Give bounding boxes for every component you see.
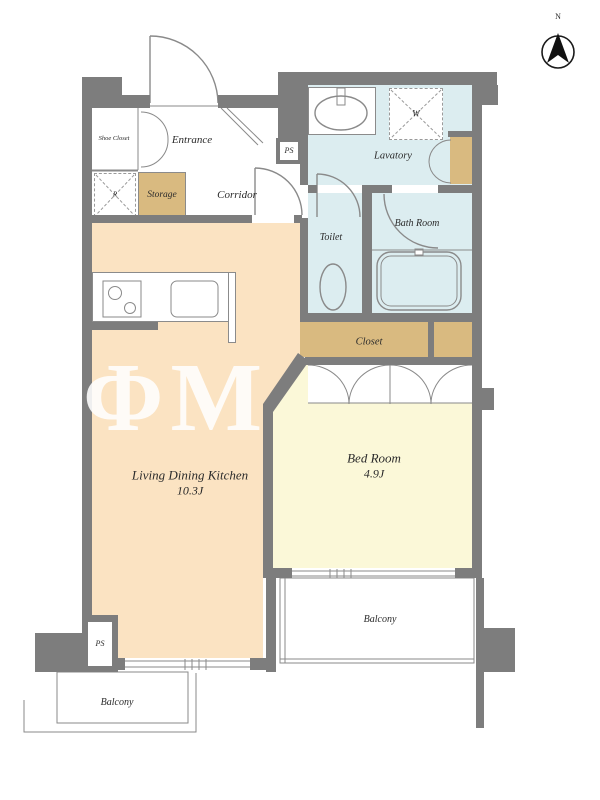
wall: [263, 568, 292, 578]
bedroom-name: Bed Room: [347, 450, 401, 466]
compass-icon: [542, 33, 574, 68]
wall: [482, 628, 515, 672]
room-label-corridor: Corridor: [217, 189, 257, 203]
wall: [482, 388, 494, 410]
wall: [300, 313, 472, 322]
wall: [448, 131, 472, 137]
wall: [308, 185, 317, 193]
bathtub-icon: [372, 249, 472, 310]
wall: [122, 95, 150, 108]
bedroom-area: 4.9J: [347, 467, 401, 482]
room-label-bath: Bath Room: [395, 218, 440, 231]
room-label-ldk: Living Dining Kitchen 10.3J: [132, 467, 248, 498]
wall: [294, 215, 302, 223]
wall: [428, 322, 434, 357]
wall: [82, 108, 92, 633]
wall: [305, 357, 472, 365]
wall: [263, 404, 273, 570]
room-label-entrance: Entrance: [172, 134, 212, 148]
refrigerator-label: R: [113, 191, 117, 200]
wall: [472, 85, 498, 105]
room-label-balcony-left: Balcony: [101, 697, 134, 710]
ldk-area: 10.3J: [132, 484, 248, 499]
kitchen-sink-icon: [171, 281, 218, 317]
washing-machine-label: W: [412, 108, 420, 119]
stove-icon: [103, 281, 141, 317]
wall: [92, 215, 252, 223]
room-label-lavatory: Lavatory: [374, 149, 412, 162]
wall: [455, 568, 472, 578]
room-label-storage: Storage: [147, 190, 177, 202]
bedroom-window-icon: [292, 569, 455, 578]
closet-folding-doors-icon: [308, 365, 472, 404]
ldk-name: Living Dining Kitchen: [132, 467, 248, 483]
entrance-step-line: [221, 108, 263, 145]
kitchen-half-wall: [86, 322, 158, 330]
floor-plan: Shoe Closet Entrance Storage Corridor PS…: [0, 0, 600, 800]
wall: [82, 77, 122, 108]
wall: [472, 105, 482, 578]
room-label-toilet: Toilet: [320, 232, 342, 245]
ldk-window-icon: [125, 659, 250, 670]
toilet-fixture-icon: [320, 264, 346, 318]
wall: [287, 72, 497, 85]
room-label-bedroom: Bed Room 4.9J: [347, 450, 401, 481]
wall: [300, 72, 308, 185]
ps-top-label: PS: [285, 146, 294, 156]
wall: [266, 578, 276, 672]
wall: [372, 185, 392, 193]
room-label-closet: Closet: [356, 335, 383, 348]
ps-bottom-label: PS: [96, 639, 105, 649]
toilet-door-icon: [317, 174, 360, 217]
wall: [218, 95, 280, 108]
sink-icon: [315, 88, 367, 130]
wall: [300, 218, 308, 322]
compass-n-label: N: [555, 12, 561, 22]
wall: [438, 185, 472, 193]
wall: [362, 185, 372, 322]
entrance-door-icon: [150, 36, 218, 106]
room-label-balcony-right: Balcony: [364, 614, 397, 627]
ldk-door-icon: [255, 168, 302, 215]
room-label-shoe-closet: Shoe Closet: [99, 135, 130, 143]
cabinet-doors-icon: [429, 140, 451, 183]
